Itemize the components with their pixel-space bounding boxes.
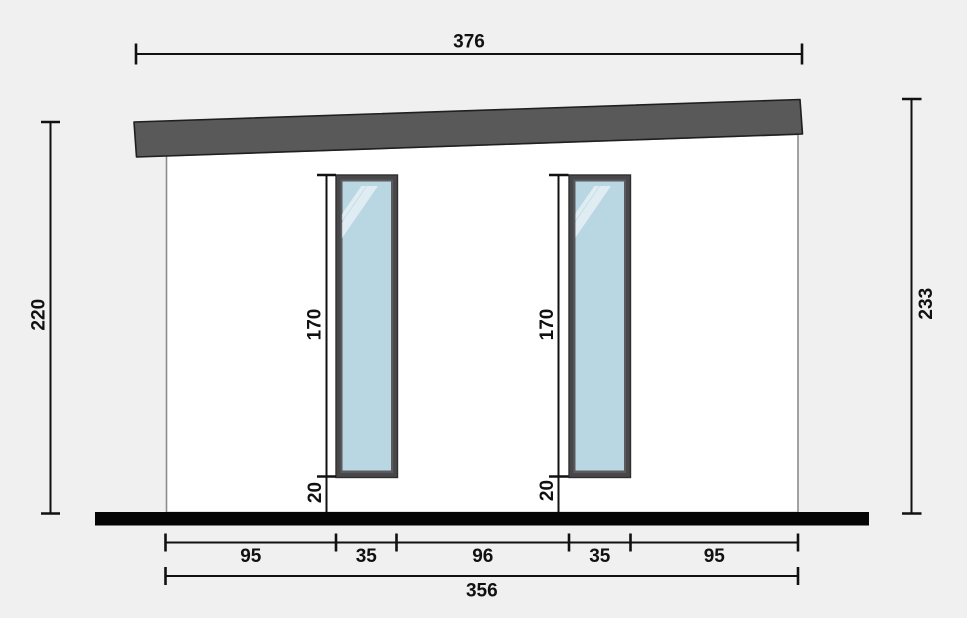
svg-text:356: 356 bbox=[466, 581, 498, 602]
svg-text:220: 220 bbox=[28, 299, 49, 331]
svg-text:35: 35 bbox=[356, 546, 378, 567]
svg-text:170: 170 bbox=[305, 309, 326, 341]
svg-text:95: 95 bbox=[704, 546, 726, 567]
svg-text:233: 233 bbox=[916, 288, 937, 320]
svg-text:170: 170 bbox=[537, 309, 558, 341]
svg-text:376: 376 bbox=[453, 32, 485, 53]
svg-text:20: 20 bbox=[305, 482, 326, 503]
svg-text:96: 96 bbox=[472, 546, 493, 567]
svg-text:35: 35 bbox=[589, 546, 611, 567]
svg-text:95: 95 bbox=[240, 546, 262, 567]
svg-text:20: 20 bbox=[537, 480, 558, 501]
